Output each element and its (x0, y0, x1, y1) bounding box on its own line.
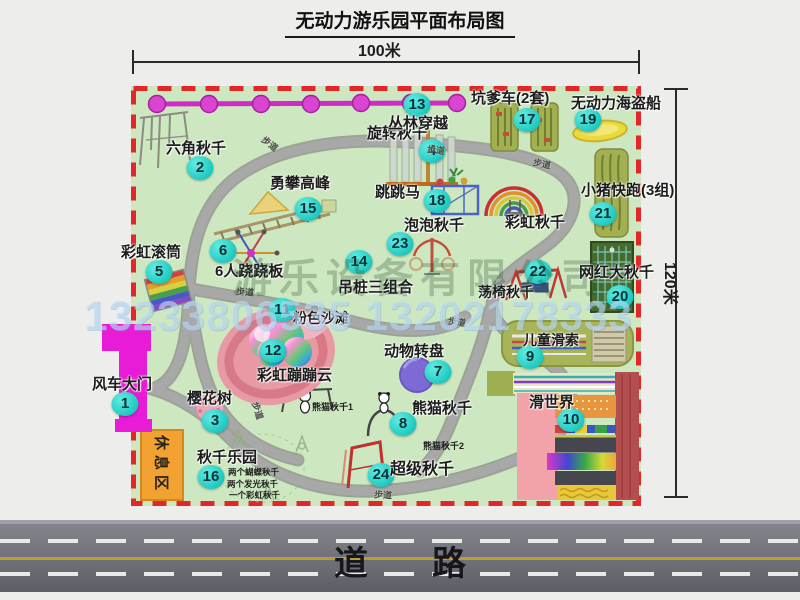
attraction-label: 勇攀高峰 (270, 176, 330, 193)
page-title-wrap: 无动力游乐园平面布局图 (0, 6, 800, 38)
attraction-label: 坑爹车(2套) (471, 91, 549, 108)
badge-5: 5 (146, 260, 173, 284)
park-layout-plan: 无动力游乐园平面布局图 (0, 0, 800, 600)
badge-2: 2 (187, 156, 214, 180)
dimension-width-label: 100米 (358, 37, 401, 61)
badge-17: 17 (514, 108, 541, 132)
note-label: 熊猫秋千2 (423, 442, 464, 451)
badge-12: 12 (260, 339, 287, 363)
badge-18: 18 (424, 189, 451, 213)
note-label: 两个发光秋千 (227, 480, 278, 489)
page-title: 无动力游乐园平面布局图 (285, 6, 514, 38)
attraction-label: 泡泡秋千 (404, 218, 464, 235)
attraction-label: 彩虹蹦蹦云 (257, 368, 332, 385)
attraction-label: 小猪快跑(3组) (581, 183, 674, 200)
note-label: 熊猫秋千1 (312, 403, 353, 412)
badge-13: 13 (404, 93, 431, 117)
badge-3: 3 (202, 409, 229, 433)
dimension-height-label: 120米 (660, 262, 684, 305)
watermark-phone: 13233806535 13202178333 (84, 292, 633, 340)
attraction-label: 动物转盘 (384, 344, 444, 361)
badge-16: 16 (198, 465, 225, 489)
badge-15: 15 (295, 197, 322, 221)
badge-10: 10 (558, 408, 585, 432)
attraction-label: 跳跳马 (375, 185, 420, 202)
attraction-label: 彩虹秋千 (505, 215, 565, 232)
badge-1: 1 (112, 392, 139, 416)
path-label: 步道 (426, 142, 446, 157)
path-label: 步道 (374, 488, 393, 502)
attraction-label: 无动力海盗船 (571, 96, 661, 113)
rest-area: 休息区 (141, 430, 183, 500)
attraction-label: 熊猫秋千 (412, 401, 472, 418)
note-label: 两个蝴蝶秋千 (228, 468, 279, 477)
attraction-label: 丛林穿越 (388, 116, 448, 133)
attraction-label: 彩虹滚筒 (121, 245, 181, 262)
badge-7: 7 (425, 360, 452, 384)
badge-9: 9 (517, 345, 544, 369)
road-label: 道路 (0, 536, 800, 585)
road: 道路 (0, 520, 800, 592)
note-label: 一个彩虹秋千 (229, 491, 280, 500)
attraction-label: 樱花树 (187, 391, 232, 408)
rest-area-label: 休息区 (152, 435, 173, 495)
attraction-label: 滑世界 (529, 395, 574, 412)
attraction-label: 六角秋千 (166, 141, 226, 158)
attraction-label: 秋千乐园 (197, 450, 257, 467)
badge-21: 21 (590, 202, 617, 226)
attraction-label: 风车大门 (92, 377, 152, 394)
attraction-label: 超级秋千 (390, 461, 454, 479)
